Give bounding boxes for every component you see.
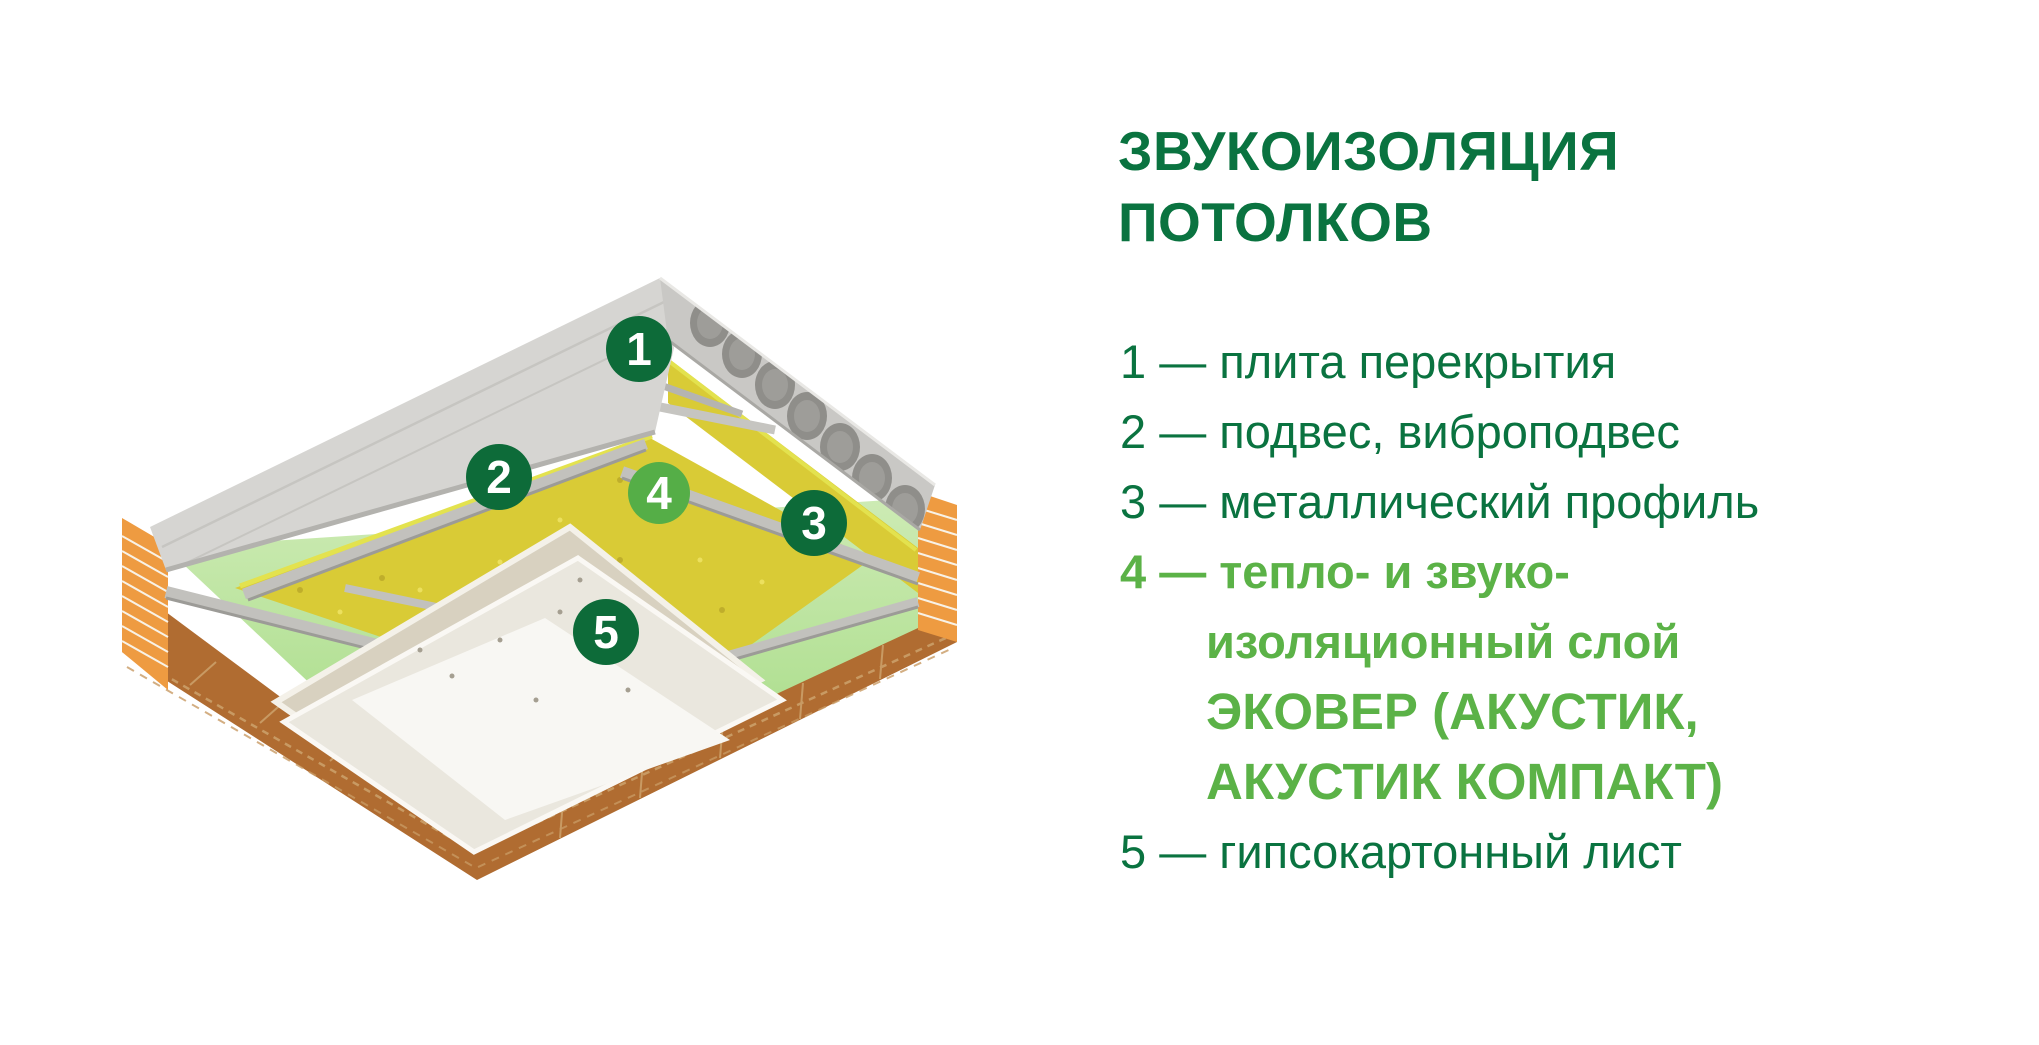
marker-1: 1	[606, 316, 672, 382]
svg-text:5: 5	[593, 606, 619, 658]
marker-2: 2	[466, 444, 532, 510]
legend-item-2: 2 — подвес, виброподвес	[1120, 397, 1759, 467]
legend-item-4-line-1: 4 — тепло- и звуко-	[1120, 537, 1759, 607]
svg-text:4: 4	[646, 467, 672, 519]
page-title: ЗВУКОИЗОЛЯЦИЯ ПОТОЛКОВ	[1118, 116, 1619, 258]
sound-insulation-ceiling-page: 1 2 4 3 5 ЗВУКОИЗОЛЯЦИЯ ПОТОЛКОВ 1 — пли…	[0, 0, 2039, 1045]
legend-item-4-line-2: изоляционный слой	[1206, 607, 1759, 677]
page-title-line-1: ЗВУКОИЗОЛЯЦИЯ	[1118, 116, 1619, 187]
legend-item-4-line-3: ЭКОВЕР (АКУСТИК,	[1206, 677, 1759, 747]
svg-text:1: 1	[626, 323, 652, 375]
svg-text:2: 2	[486, 451, 512, 503]
marker-3: 3	[781, 490, 847, 556]
marker-5: 5	[573, 599, 639, 665]
page-title-line-2: ПОТОЛКОВ	[1118, 187, 1619, 258]
marker-4: 4	[628, 462, 690, 524]
legend-item-1: 1 — плита перекрытия	[1120, 327, 1759, 397]
legend-item-3: 3 — металлический профиль	[1120, 467, 1759, 537]
svg-text:3: 3	[801, 497, 827, 549]
legend-item-4-line-4: АКУСТИК КОМПАКТ)	[1206, 747, 1759, 817]
legend: 1 — плита перекрытия 2 — подвес, вибропо…	[1120, 327, 1759, 887]
legend-item-5: 5 — гипсокартонный лист	[1120, 817, 1759, 887]
